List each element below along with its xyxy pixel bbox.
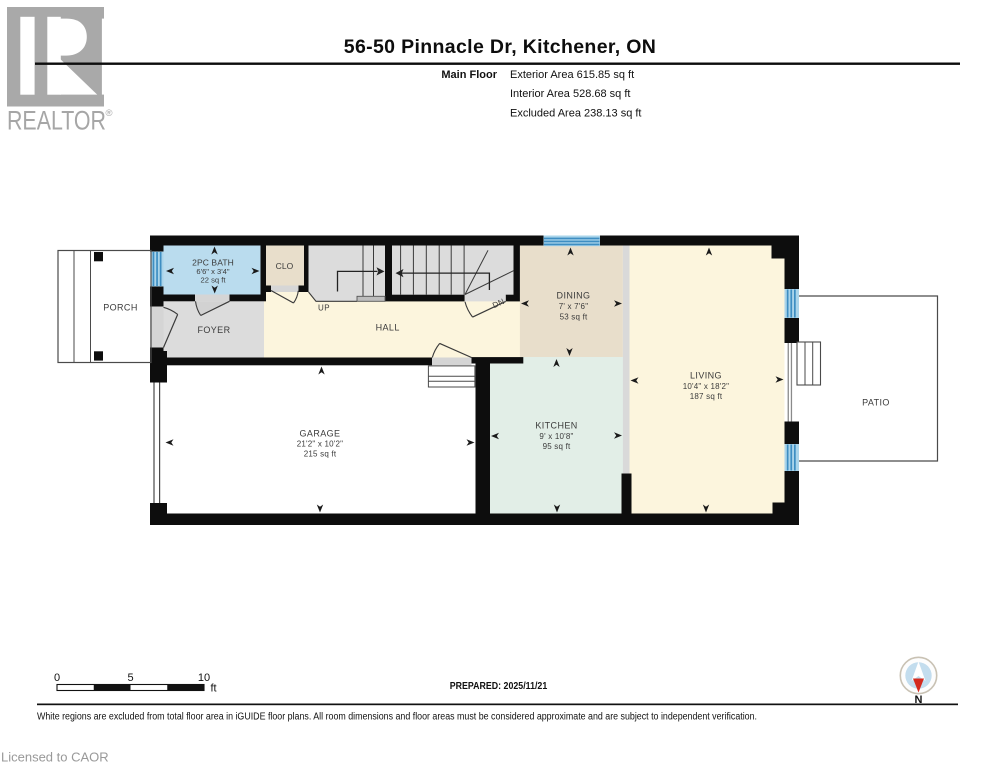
svg-text:CLO: CLO [276,261,294,271]
svg-text:DINING: DINING [557,291,591,301]
svg-text:2PC BATH: 2PC BATH [192,258,234,268]
svg-text:56-50 Pinnacle Dr, Kitchener,: 56-50 Pinnacle Dr, Kitchener, ON [344,36,657,58]
svg-text:HALL: HALL [376,322,400,332]
svg-text:10: 10 [198,672,210,684]
svg-text:Exterior Area 615.85 sq ft: Exterior Area 615.85 sq ft [510,69,634,81]
svg-text:Excluded Area 238.13 sq ft: Excluded Area 238.13 sq ft [510,108,641,120]
svg-text:215 sq ft: 215 sq ft [304,449,337,458]
svg-text:PORCH: PORCH [103,303,138,313]
svg-text:PREPARED: 2025/11/21: PREPARED: 2025/11/21 [450,680,548,692]
svg-text:Interior Area 528.68 sq ft: Interior Area 528.68 sq ft [510,88,630,100]
svg-text:22 sq ft: 22 sq ft [201,275,227,284]
svg-text:10'4" x 18'2": 10'4" x 18'2" [683,382,729,391]
svg-text:9' x 10'8": 9' x 10'8" [539,432,573,441]
svg-text:UP: UP [318,303,330,312]
svg-text:7' x 7'6": 7' x 7'6" [559,302,589,311]
svg-text:FOYER: FOYER [197,325,230,335]
svg-text:95 sq ft: 95 sq ft [543,442,571,451]
svg-text:LIVING: LIVING [690,370,722,380]
svg-text:KITCHEN: KITCHEN [535,420,577,430]
svg-text:White regions are excluded fro: White regions are excluded from total fl… [37,712,757,723]
svg-text:GARAGE: GARAGE [300,428,341,438]
svg-text:53 sq ft: 53 sq ft [560,312,588,321]
svg-text:187 sq ft: 187 sq ft [690,392,723,401]
svg-text:REALTOR: REALTOR [7,106,106,136]
svg-text:Licensed to CAOR: Licensed to CAOR [1,750,109,765]
svg-text:ft: ft [211,683,217,695]
svg-text:5: 5 [127,672,133,684]
svg-text:21'2" x 10'2": 21'2" x 10'2" [297,439,343,448]
svg-text:PATIO: PATIO [862,398,890,408]
svg-text:0: 0 [54,672,60,684]
svg-text:®: ® [106,108,113,119]
svg-text:Main Floor: Main Floor [441,69,497,81]
